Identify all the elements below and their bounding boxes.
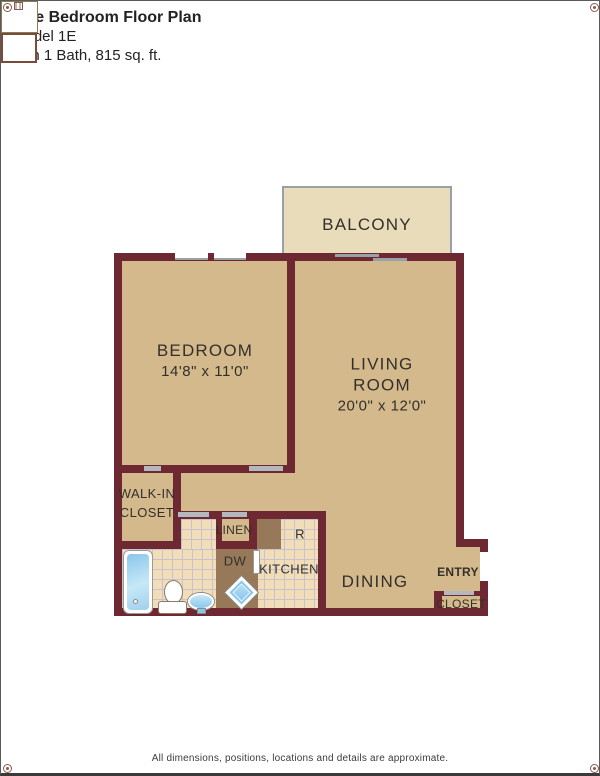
walkin-closet-label-line1: WALK-IN — [119, 484, 176, 503]
bedroom-dimensions: 14'8" x 11'0" — [157, 361, 253, 382]
entry-closet-door-opening — [444, 591, 474, 595]
dining-label: DINING — [342, 572, 409, 592]
stove — [1, 33, 37, 63]
bedroom-window-left — [175, 252, 208, 260]
wall-kitchen-right — [318, 511, 326, 616]
dishwasher-label: DW — [224, 554, 246, 569]
stove-burner — [3, 764, 12, 773]
bedroom-label-block: BEDROOM 14'8" x 11'0" — [157, 340, 253, 382]
balcony-slider-panel-1 — [335, 254, 379, 257]
walkin-closet-label-line2: CLOSET — [119, 503, 176, 522]
bathtub-drain — [133, 599, 138, 604]
entry-label: ENTRY — [437, 565, 479, 579]
living-room-label-line1: LIVING — [338, 354, 427, 375]
wall-right-upper — [456, 253, 464, 547]
balcony-label: BALCONY — [322, 215, 412, 235]
living-room-label-block: LIVING ROOM 20'0" x 12'0" — [338, 354, 427, 417]
linen-door-opening — [222, 512, 247, 517]
linen-label: LINEN — [216, 523, 253, 537]
wall-left — [114, 253, 122, 616]
toilet-tank — [158, 601, 187, 614]
floor-plan-page: One Bedroom Floor Plan Model 1E with 1 B… — [0, 0, 600, 776]
floor-plan-drawing: BALCONY — [1, 1, 600, 776]
walkin-closet-label-block: WALK-IN CLOSET — [119, 484, 176, 522]
kitchen-label: KITCHEN — [259, 562, 319, 577]
bedroom-label: BEDROOM — [157, 340, 253, 361]
bathtub-basin — [127, 554, 149, 610]
stove-burner — [590, 764, 599, 773]
kitchen-counter-top — [254, 519, 281, 549]
bedroom-door-opening — [249, 466, 283, 471]
balcony-slider-panel-2 — [373, 258, 407, 261]
refrigerator-label: R — [295, 527, 305, 542]
bedroom-window-right — [214, 252, 246, 260]
entry-closet-label: CLOSET — [436, 597, 486, 611]
stove-burner — [3, 3, 12, 12]
pedestal-sink-base — [197, 608, 206, 614]
bathroom-hall-door-opening — [178, 512, 209, 517]
hallway-tile-floor — [181, 519, 216, 549]
living-room-label-line2: ROOM — [338, 375, 427, 396]
disclaimer-text: All dimensions, positions, locations and… — [1, 753, 599, 764]
kitchen-sink-basin — [232, 583, 250, 601]
stove-grate — [14, 2, 23, 10]
living-room-dimensions: 20'0" x 12'0" — [338, 396, 427, 417]
wall-entry-stub — [480, 539, 488, 552]
wall-linen-bottom — [216, 541, 257, 549]
wall-walkin-bottom — [114, 541, 181, 549]
wall-bedroom-living-divider — [287, 253, 295, 473]
bathtub — [123, 550, 153, 614]
walkin-closet-door-opening — [144, 466, 161, 471]
stove-burner — [590, 3, 599, 12]
